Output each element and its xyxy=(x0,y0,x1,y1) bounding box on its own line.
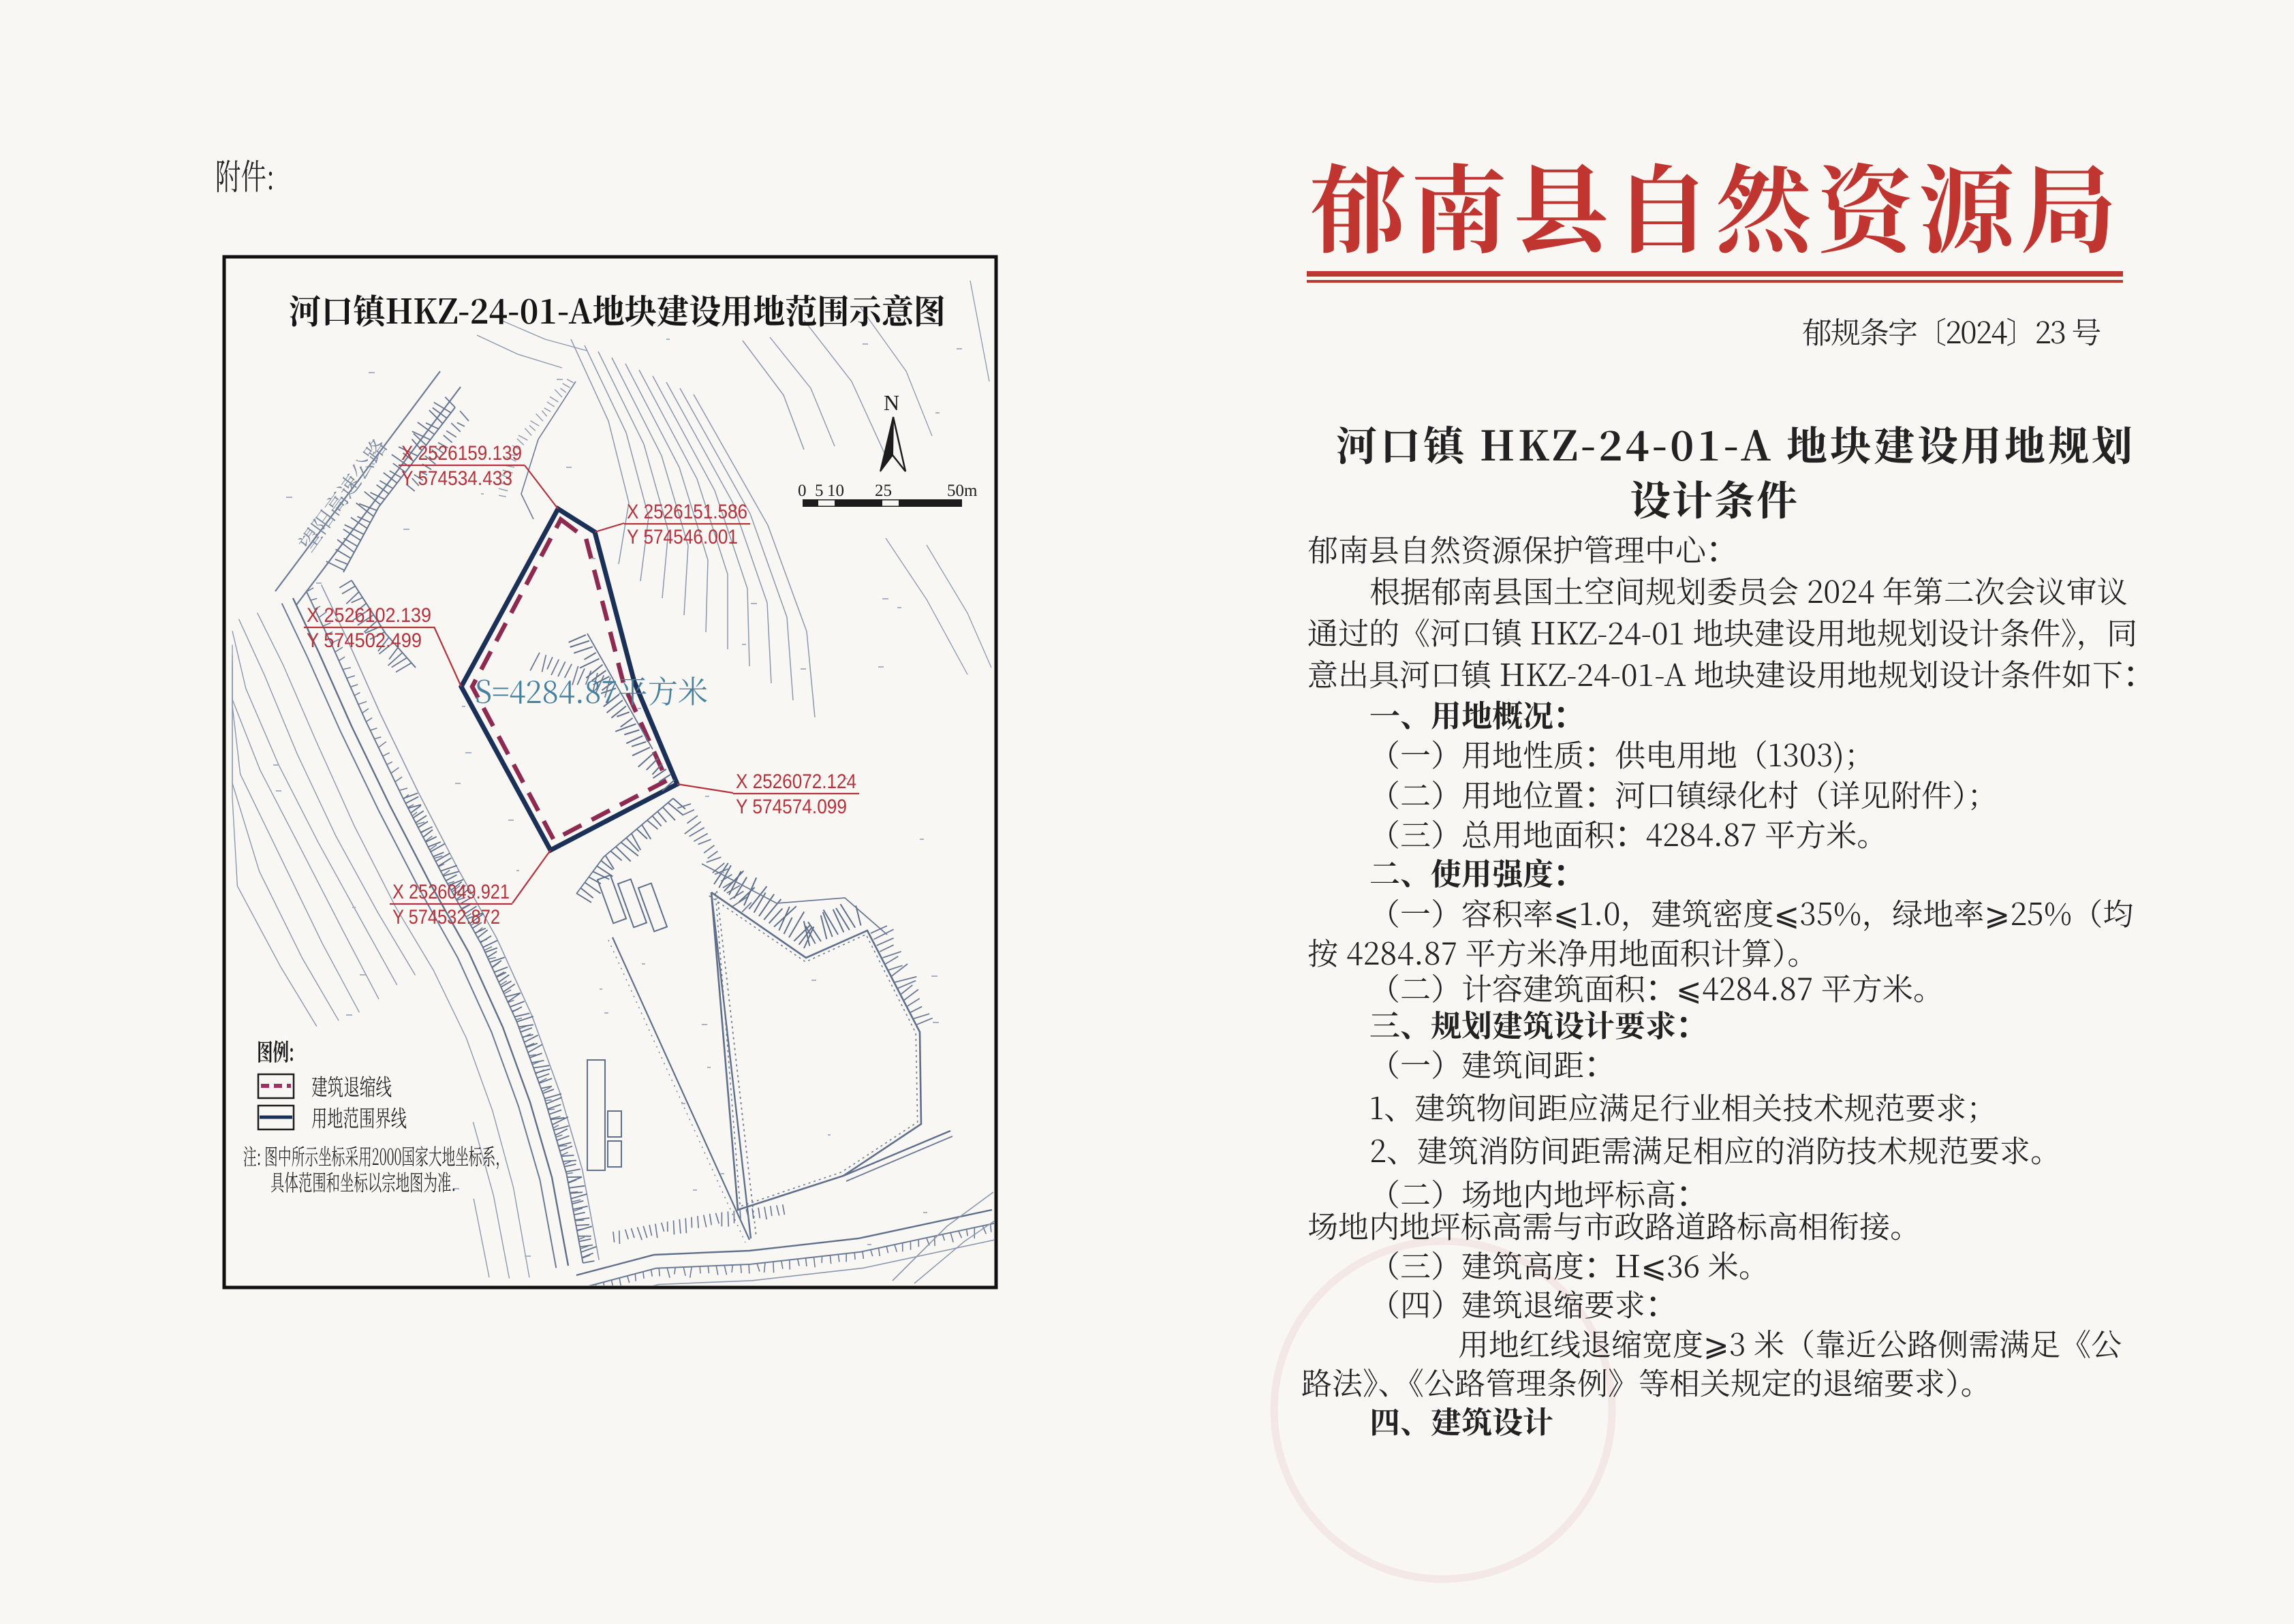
svg-text:X 2526159.139: X 2526159.139 xyxy=(401,442,522,465)
svg-text:Y 574546.001: Y 574546.001 xyxy=(627,526,738,548)
svg-text:河口镇HKZ-24-01-A地块建设用地范围示意图: 河口镇HKZ-24-01-A地块建设用地范围示意图 xyxy=(289,285,946,334)
svg-text:图例:: 图例: xyxy=(257,1034,294,1068)
svg-text:X 2526102.139: X 2526102.139 xyxy=(307,604,431,627)
svg-text:N: N xyxy=(884,390,899,415)
svg-text:Y 574534.433: Y 574534.433 xyxy=(401,467,512,490)
svg-text:具体范围和坐标以宗地图为准.: 具体范围和坐标以宗地图为准. xyxy=(270,1166,456,1198)
svg-text:5: 5 xyxy=(815,482,824,500)
svg-text:望阳高速公路: 望阳高速公路 xyxy=(290,431,393,557)
svg-text:0: 0 xyxy=(798,482,807,500)
svg-text:10: 10 xyxy=(827,482,844,500)
svg-text:S=4284.87平方米: S=4284.87平方米 xyxy=(475,668,708,713)
svg-text:X 2526049.921: X 2526049.921 xyxy=(392,881,510,903)
svg-text:50m: 50m xyxy=(947,482,978,500)
svg-text:25: 25 xyxy=(875,482,892,500)
svg-text:用地范围界线: 用地范围界线 xyxy=(311,1100,407,1134)
svg-text:X 2526072.124: X 2526072.124 xyxy=(736,770,856,793)
svg-text:建筑退缩线: 建筑退缩线 xyxy=(311,1069,392,1102)
svg-text:Y 574502.499: Y 574502.499 xyxy=(307,629,422,652)
svg-text:Y 574532.872: Y 574532.872 xyxy=(392,906,500,928)
svg-text:X 2526151.586: X 2526151.586 xyxy=(627,501,747,523)
svg-text:Y 574574.099: Y 574574.099 xyxy=(736,796,847,818)
